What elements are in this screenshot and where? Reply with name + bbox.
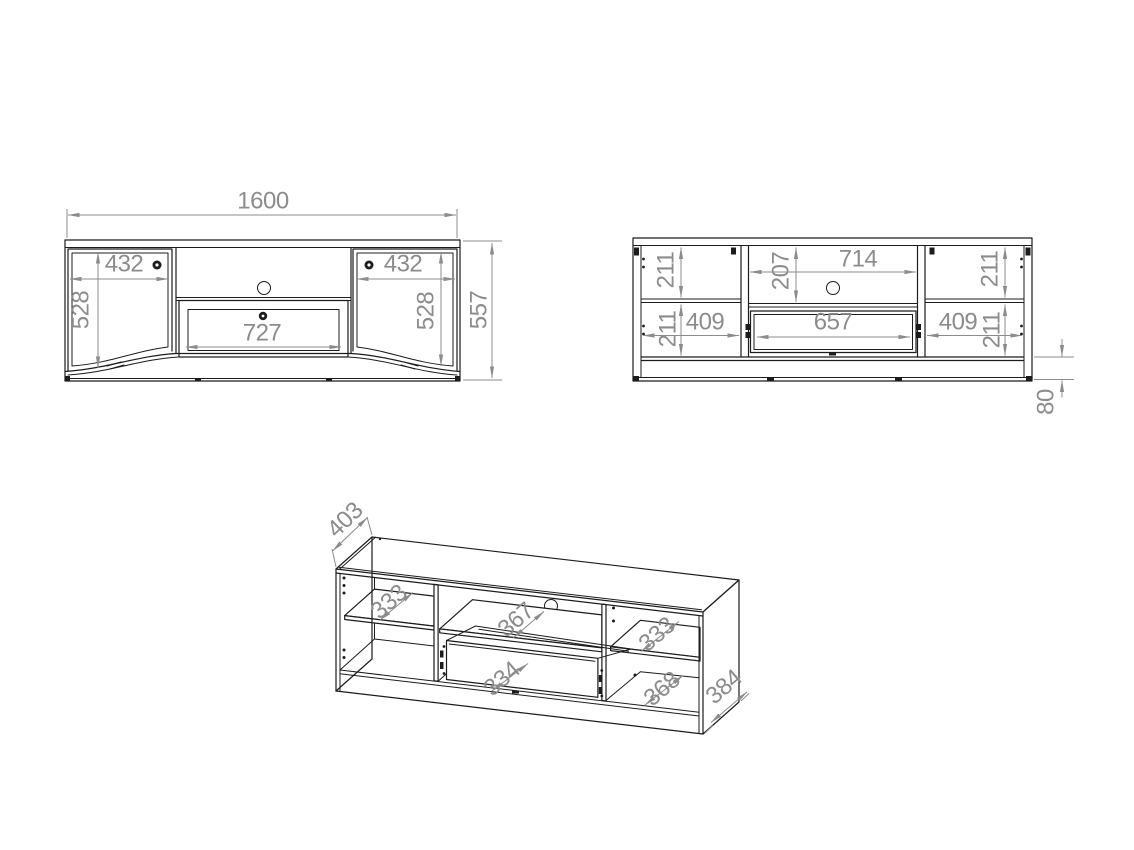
corner-foot [65, 376, 70, 381]
corner-foot [1026, 376, 1032, 381]
hinge-mark [930, 248, 935, 255]
right-divider [602, 604, 606, 701]
dim-label: 432 [384, 251, 423, 278]
hinge-mark [731, 248, 736, 255]
corner-foot [633, 376, 639, 381]
dim-bottom-right-height: 211 [979, 305, 1006, 356]
dim-label: 211 [979, 311, 1006, 348]
dim-top-left-height: 211 [653, 248, 682, 298]
dim-label: 80 [1033, 389, 1060, 415]
dim-bottom-left-height: 211 [655, 305, 682, 356]
dim-label: 432 [105, 251, 144, 278]
drawer-stop-mark [829, 353, 836, 356]
dim-iso-right-bottom-depth: 368 [639, 666, 686, 712]
dim-front-drawer-width: 727 [186, 320, 341, 348]
front-view: 1600 432 432 528 528 557 727 [65, 188, 502, 382]
foot-glide [326, 378, 332, 381]
internal-view: 714 207 211 211 409 657 211 211 [633, 238, 1074, 415]
corner-foot [455, 376, 460, 381]
drawer-runner-mark [599, 675, 603, 682]
dim-label: 403 [322, 497, 369, 543]
dim-plinth-height: 80 [1033, 339, 1075, 415]
dim-label: 528 [413, 292, 440, 331]
drawer-runner-mark [746, 332, 751, 338]
iso-view: 403 333 367 334 333 368 384 [322, 497, 749, 734]
foot-glide [767, 378, 774, 381]
hinge-mark [1026, 248, 1031, 256]
drawer-runner-mark [746, 324, 751, 330]
cable-hole-icon [827, 282, 840, 295]
left-divider [434, 584, 438, 681]
dim-label: 409 [686, 309, 725, 336]
drawing-canvas: 1600 432 432 528 528 557 727 [0, 0, 1134, 850]
dim-label: 207 [768, 252, 795, 291]
technical-drawing-sheet: 1600 432 432 528 528 557 727 [0, 0, 1134, 850]
drawer-runner-mark [599, 687, 603, 694]
drawer-runner-mark [440, 651, 444, 658]
dim-label: 211 [653, 251, 680, 288]
dim-niche-height: 207 [768, 248, 797, 303]
drawer-runner-mark [440, 662, 444, 669]
dim-right-niche-width: 409 [927, 309, 1022, 336]
foot-glide [512, 691, 519, 694]
dim-label: 211 [655, 310, 682, 347]
dim-front-total-height: 557 [463, 241, 502, 380]
iso-view-linework [336, 537, 739, 734]
dim-label: 557 [466, 291, 493, 330]
dim-label: 714 [839, 246, 878, 273]
foot-glide [895, 378, 902, 381]
dim-label: 727 [243, 320, 282, 347]
dim-front-width: 1600 [67, 188, 457, 239]
dim-label: 211 [977, 250, 1004, 287]
dim-label: 1600 [237, 188, 289, 215]
dim-label: 528 [68, 291, 95, 330]
hinge-mark [634, 248, 639, 256]
drawer-runner-mark [917, 324, 922, 330]
foot-glide [195, 378, 201, 381]
dim-label: 409 [939, 309, 978, 336]
dim-drawer-inner-width: 657 [757, 309, 910, 338]
dim-label: 657 [814, 309, 853, 336]
drawer-runner-mark [917, 332, 922, 338]
cable-hole-icon [258, 282, 271, 295]
dim-top-right-height: 211 [977, 248, 1006, 298]
